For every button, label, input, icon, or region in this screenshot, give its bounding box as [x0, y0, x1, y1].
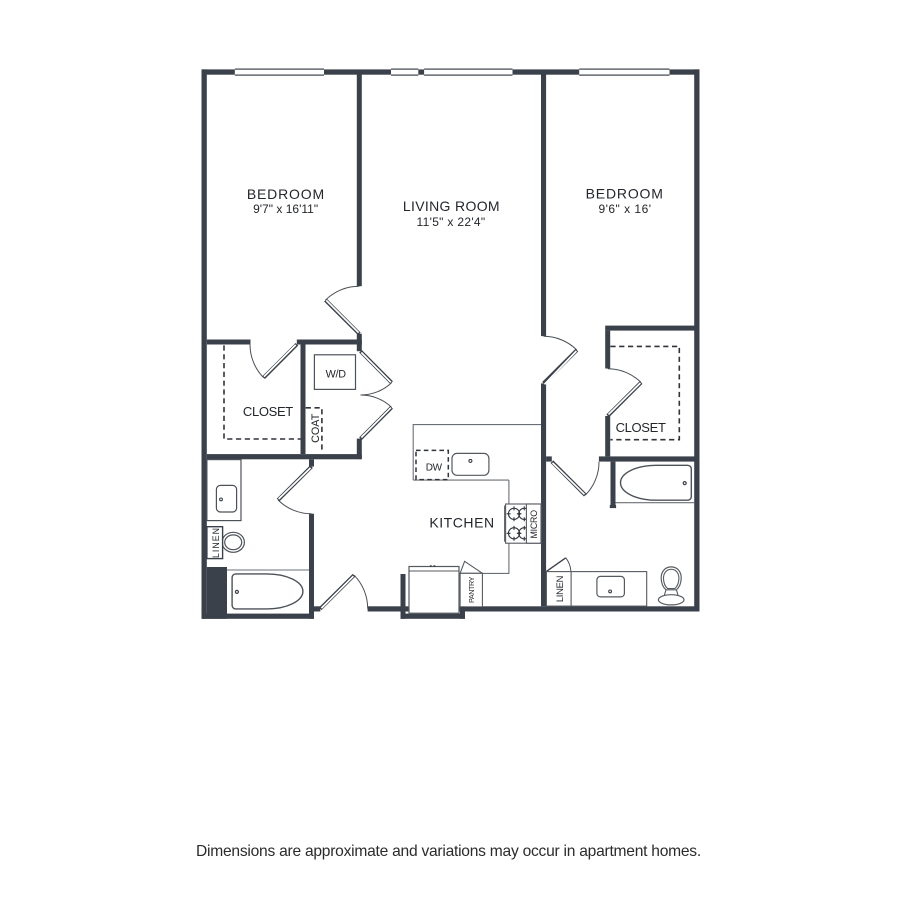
svg-text:MICRO: MICRO	[529, 510, 539, 539]
svg-text:9'7" x 16'11": 9'7" x 16'11"	[253, 202, 318, 216]
svg-text:BEDROOM: BEDROOM	[247, 186, 325, 202]
svg-text:DW: DW	[426, 462, 443, 473]
svg-text:BEDROOM: BEDROOM	[586, 185, 664, 201]
svg-text:COAT: COAT	[310, 413, 322, 443]
svg-text:W/D: W/D	[326, 368, 347, 380]
svg-text:Dimensions are approximate and: Dimensions are approximate and variation…	[196, 843, 701, 860]
svg-text:KITCHEN: KITCHEN	[429, 515, 494, 531]
svg-text:CLOSET: CLOSET	[616, 420, 666, 435]
svg-text:9'6" x 16': 9'6" x 16'	[598, 202, 651, 216]
svg-text:11'5" x 22'4": 11'5" x 22'4"	[417, 215, 486, 229]
svg-text:LIVING ROOM: LIVING ROOM	[403, 198, 500, 214]
svg-text:PANTRY: PANTRY	[467, 576, 476, 603]
svg-text:LINEN: LINEN	[554, 576, 565, 602]
svg-text:CLOSET: CLOSET	[243, 404, 293, 419]
svg-text:LINEN: LINEN	[211, 527, 221, 558]
